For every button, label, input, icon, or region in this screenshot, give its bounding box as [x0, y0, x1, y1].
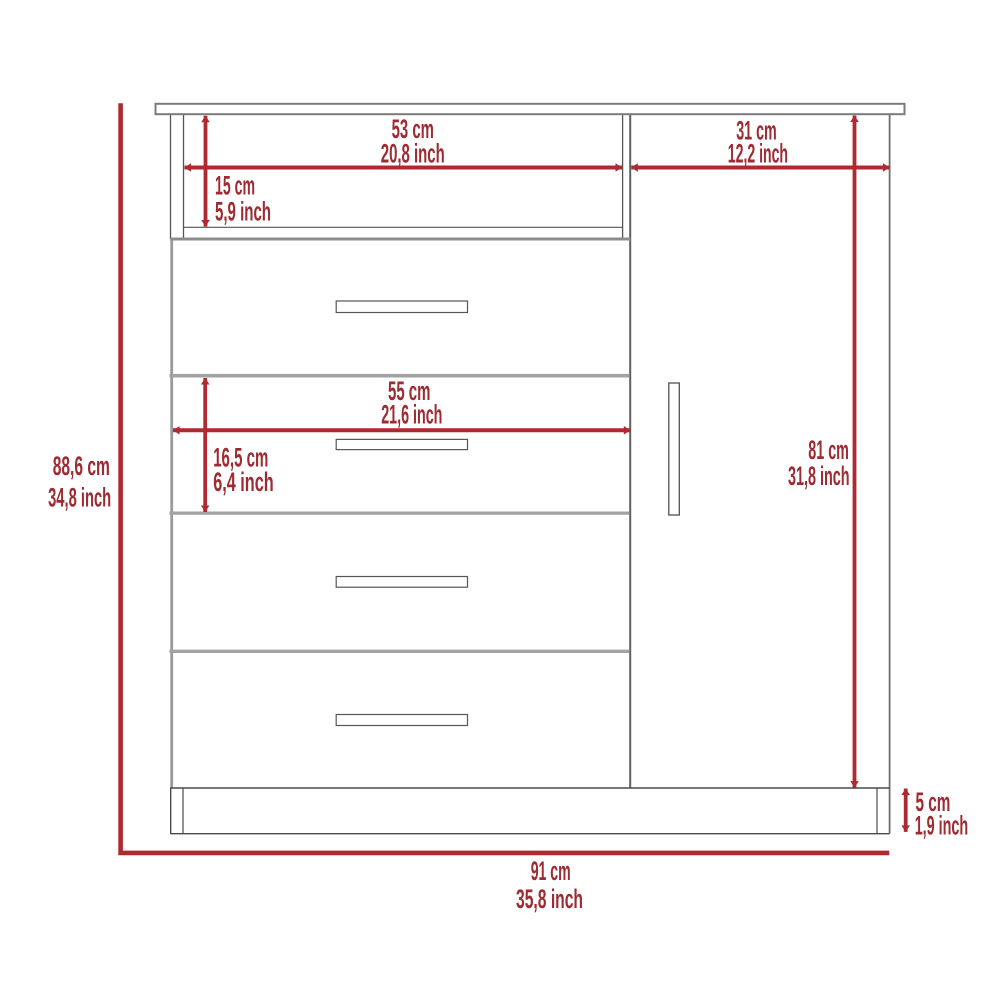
svg-text:31,8 inch: 31,8 inch	[788, 461, 850, 491]
svg-text:12,2 inch: 12,2 inch	[728, 138, 788, 168]
svg-text:35,8 inch: 35,8 inch	[516, 884, 583, 914]
svg-text:91 cm: 91 cm	[531, 856, 571, 886]
svg-text:21,6 inch: 21,6 inch	[381, 400, 442, 430]
svg-text:5,9 inch: 5,9 inch	[215, 197, 271, 227]
svg-text:88,6 cm: 88,6 cm	[53, 451, 110, 481]
svg-text:1,9 inch: 1,9 inch	[915, 810, 969, 840]
svg-text:34,8 inch: 34,8 inch	[48, 483, 111, 513]
svg-text:6,4 inch: 6,4 inch	[213, 467, 274, 497]
svg-text:20,8 inch: 20,8 inch	[381, 138, 445, 168]
